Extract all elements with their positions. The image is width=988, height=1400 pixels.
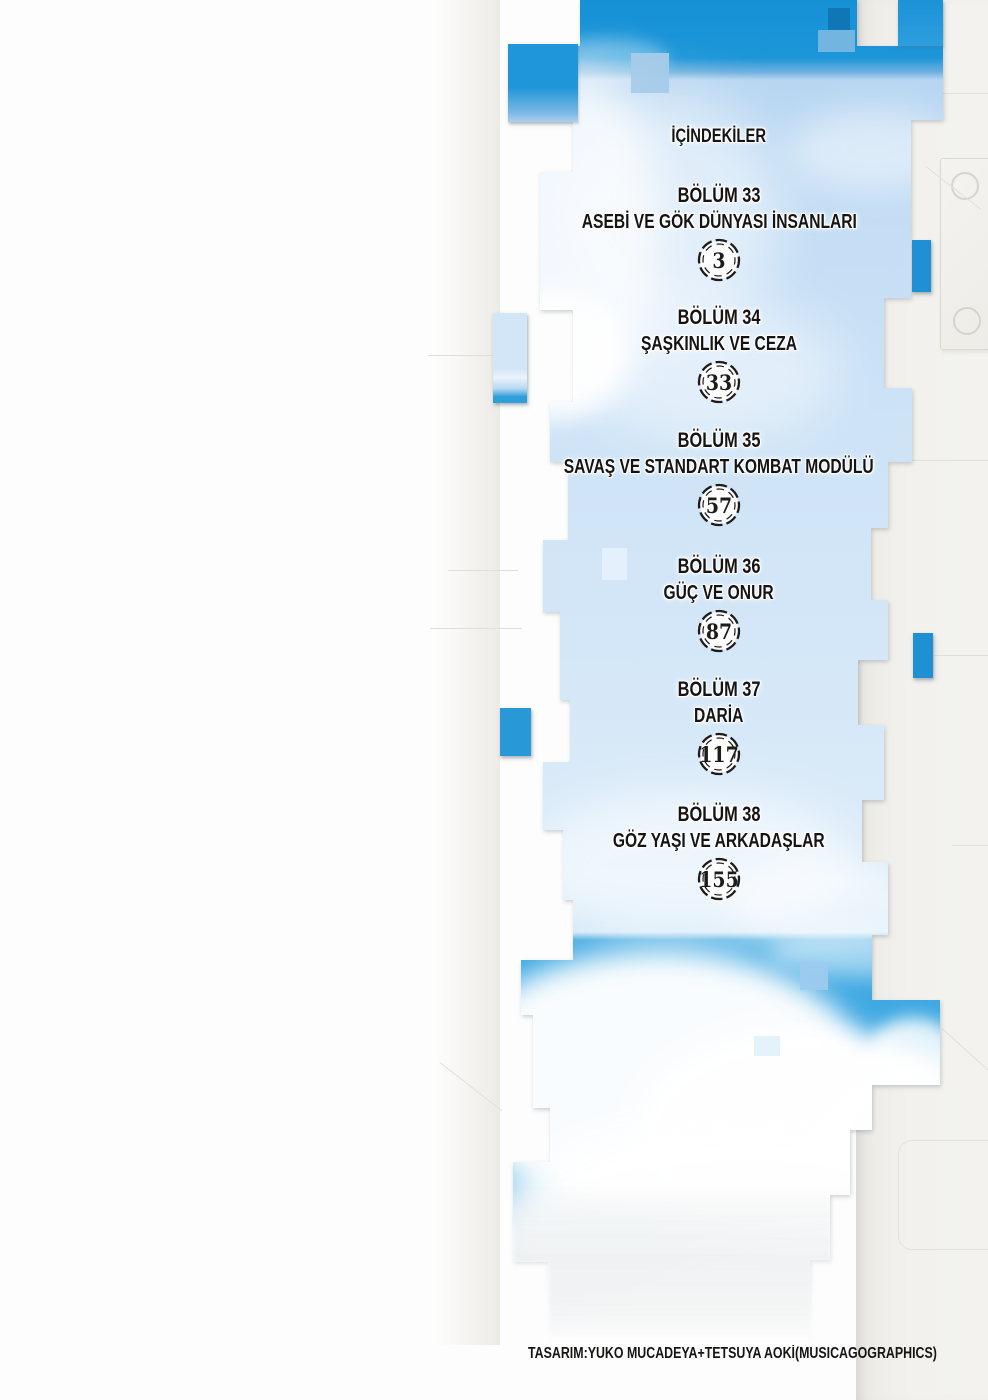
chapter-number: BÖLÜM 33	[489, 183, 949, 209]
design-credit: TASARIM:YUKO MUCADEYA+TETSUYA AOKİ(MUSIC…	[528, 1345, 968, 1363]
page-number-badge: 57	[696, 482, 742, 528]
chapter-number: BÖLÜM 37	[489, 677, 949, 703]
page-number: 33	[698, 359, 739, 405]
page-title: İÇİNDEKİLER	[489, 125, 949, 149]
chapter-number: BÖLÜM 34	[489, 305, 949, 331]
table-of-contents: İÇİNDEKİLER BÖLÜM 33 ASEBİ VE GÖK DÜNYAS…	[489, 0, 949, 1345]
chapter-entry-33: BÖLÜM 33 ASEBİ VE GÖK DÜNYASI İNSANLARI …	[489, 183, 949, 288]
chapter-title: DARİA	[489, 703, 949, 729]
page-number: 57	[698, 482, 739, 528]
chapter-entry-37: BÖLÜM 37 DARİA 117	[489, 677, 949, 782]
chapter-title: ŞAŞKINLIK VE CEZA	[489, 331, 949, 357]
page-number-badge: 3	[696, 237, 742, 283]
chapter-title: GÖZ YAŞI VE ARKADAŞLAR	[489, 828, 949, 854]
chapter-entry-36: BÖLÜM 36 GÜÇ VE ONUR 87	[489, 554, 949, 659]
design-credit-text: TASARIM:YUKO MUCADEYA+TETSUYA AOKİ(MUSIC…	[528, 1345, 937, 1363]
chapter-number: BÖLÜM 35	[489, 428, 949, 454]
page-number-badge: 87	[696, 608, 742, 654]
chapter-entry-34: BÖLÜM 34 ŞAŞKINLIK VE CEZA 33	[489, 305, 949, 410]
page-number-badge: 33	[696, 359, 742, 405]
page-number-badge: 117	[696, 731, 742, 777]
chapter-title: GÜÇ VE ONUR	[489, 580, 949, 606]
chapter-title: SAVAŞ VE STANDART KOMBAT MODÜLÜ	[489, 454, 949, 480]
page-number-badge: 155	[696, 856, 742, 902]
page-number: 3	[698, 237, 739, 283]
page-title-text: İÇİNDEKİLER	[672, 125, 767, 149]
chapter-title: ASEBİ VE GÖK DÜNYASI İNSANLARI	[489, 209, 949, 235]
page-number: 87	[698, 608, 739, 654]
chapter-number: BÖLÜM 38	[489, 802, 949, 828]
chapter-number: BÖLÜM 36	[489, 554, 949, 580]
page-number: 117	[698, 731, 739, 777]
chapter-entry-35: BÖLÜM 35 SAVAŞ VE STANDART KOMBAT MODÜLÜ…	[489, 428, 949, 533]
chapter-entry-38: BÖLÜM 38 GÖZ YAŞI VE ARKADAŞLAR 155	[489, 802, 949, 907]
page-number: 155	[698, 856, 739, 902]
